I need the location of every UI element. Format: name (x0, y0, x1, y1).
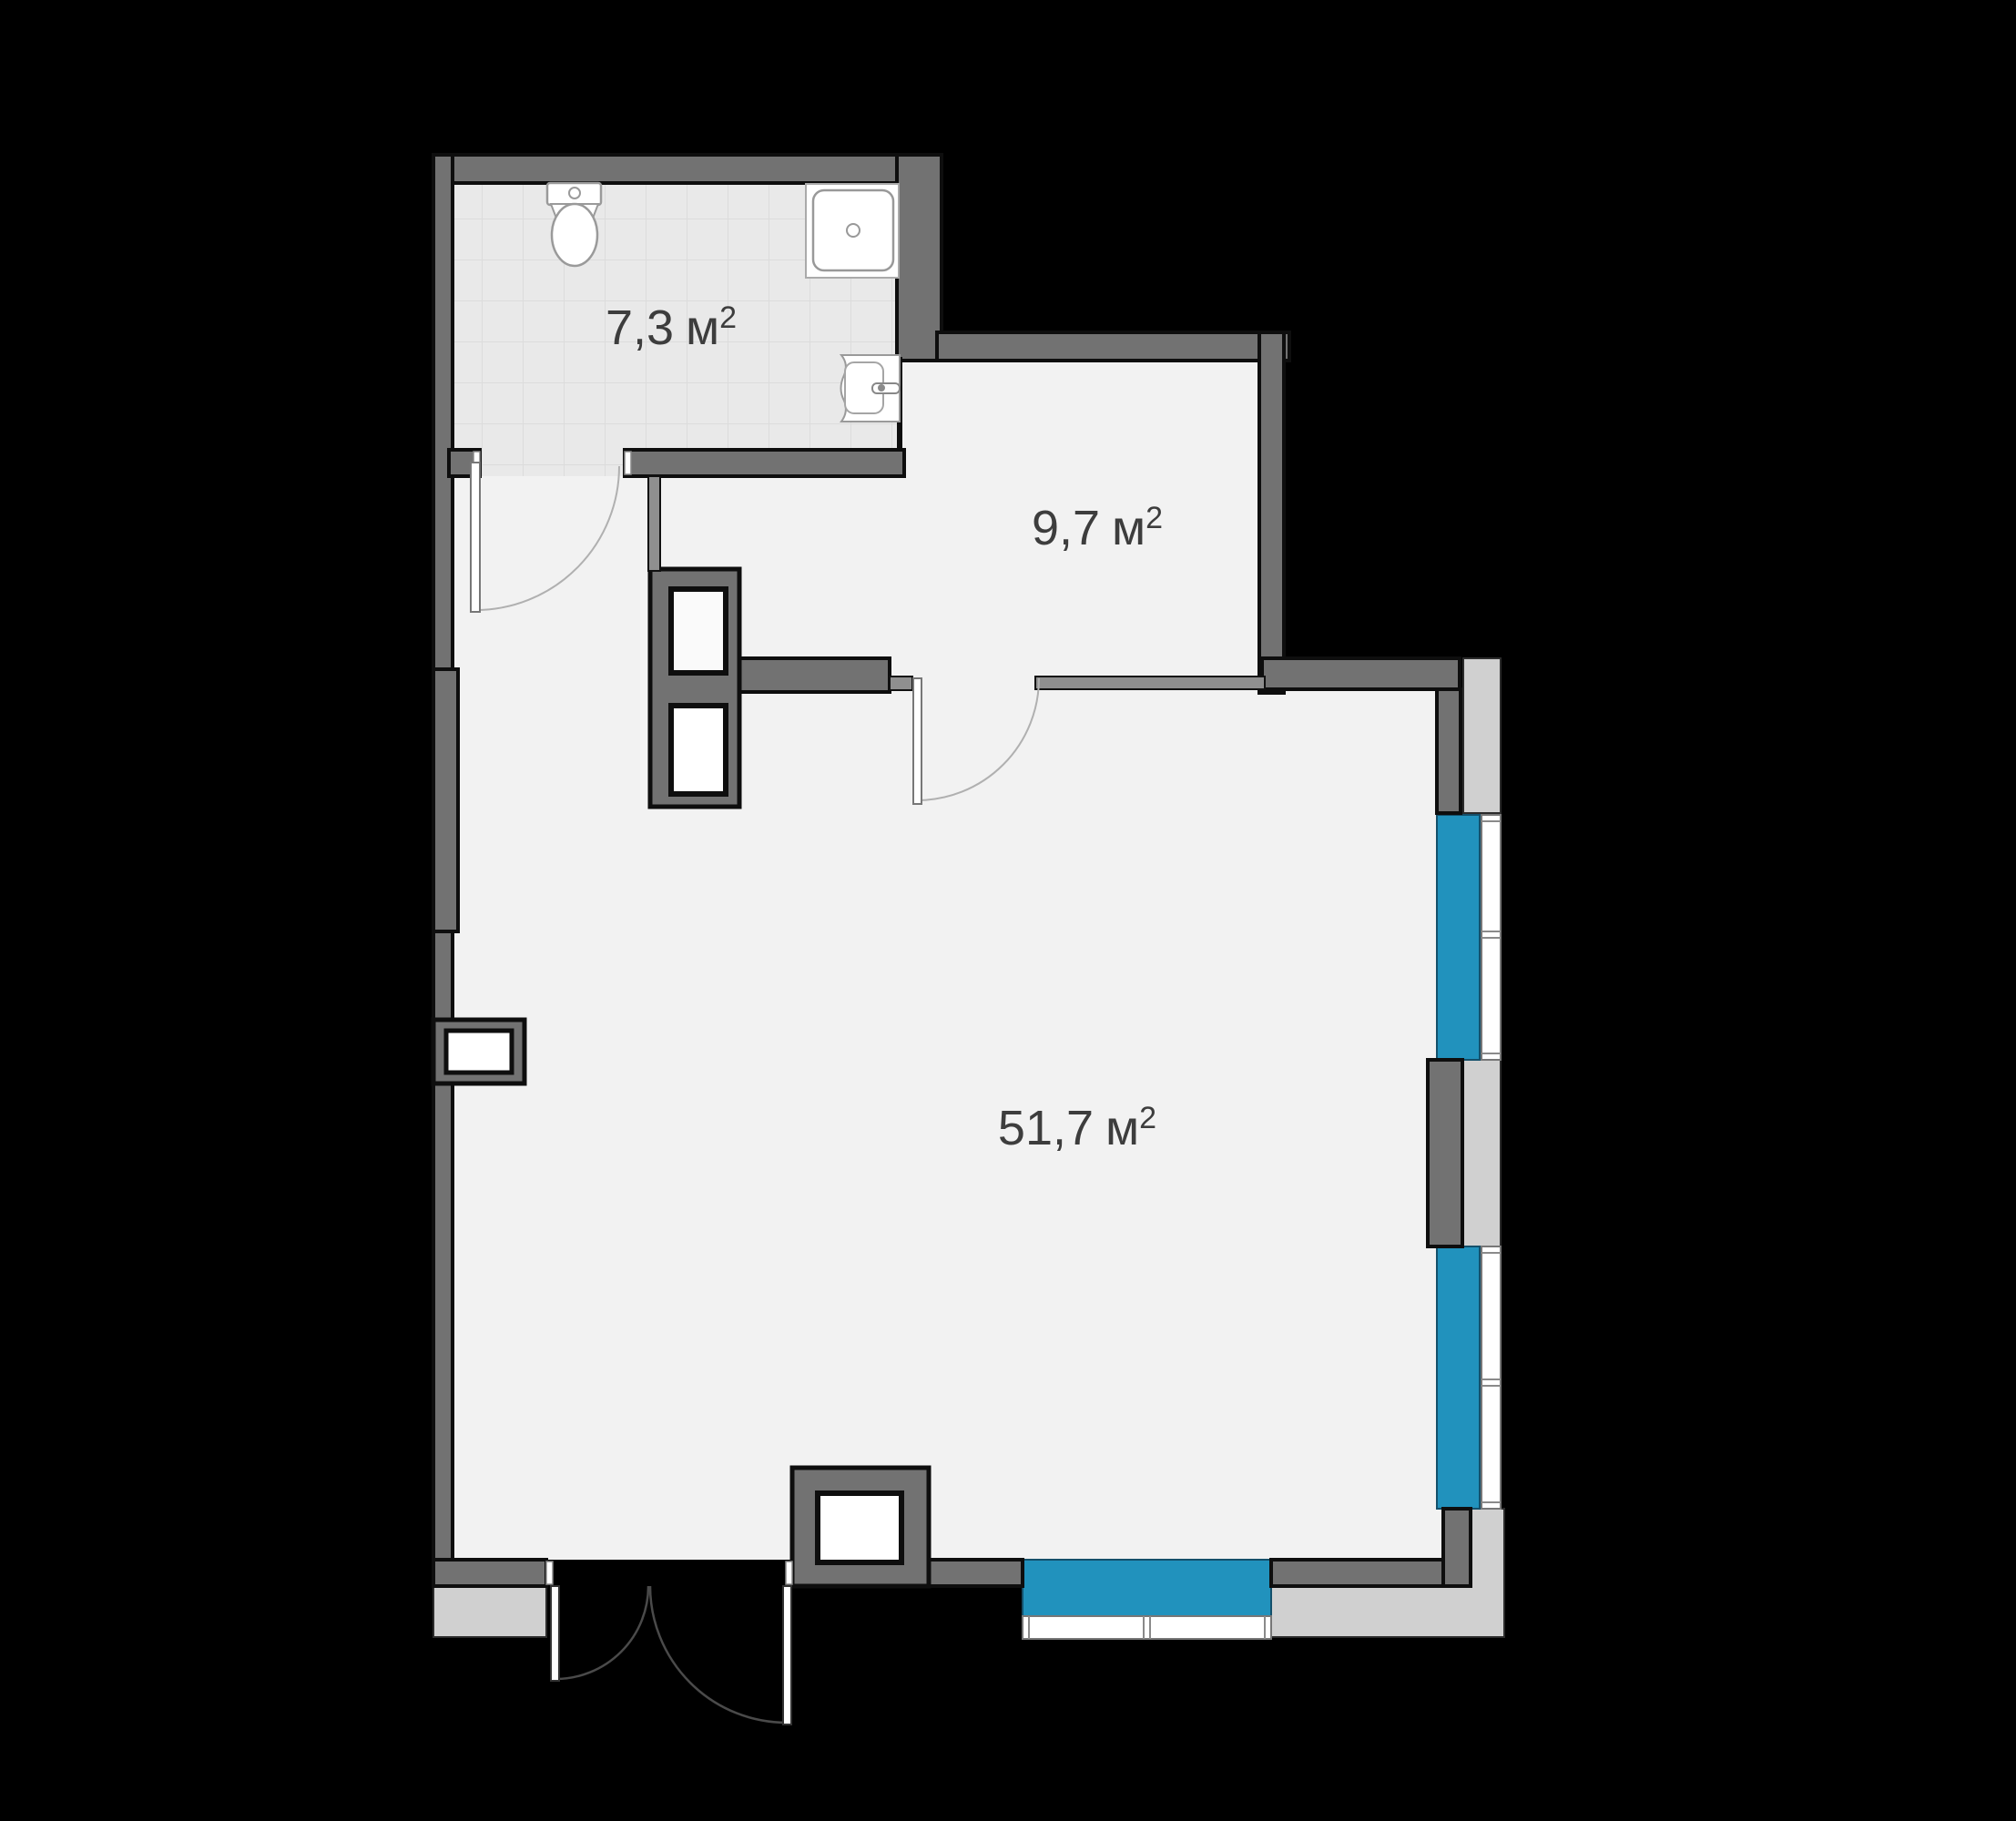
sink-icon (806, 184, 899, 278)
partition-below-bathroom (648, 476, 660, 571)
entrance-door-swing-arc-left-icon (555, 1586, 648, 1679)
floors (453, 183, 1443, 1560)
washbasin-icon (841, 355, 901, 422)
wall-hall-door-left (738, 658, 890, 692)
wall-bathroom-bottom-right (625, 450, 904, 476)
ledge-right-upper (1463, 658, 1501, 813)
window-frame-right-lower (1481, 1246, 1501, 1509)
jamb-entrance-left (546, 1562, 553, 1584)
partition-hall-living (1035, 677, 1265, 689)
entrance-door-leaf-right (783, 1586, 791, 1724)
wall-hallway-top (937, 332, 1289, 361)
entrance-door-swing-arc-right-icon (650, 1586, 787, 1723)
floor-plan-canvas: 7,3м2 9,7м2 51,7м2 (0, 0, 2016, 1821)
wall-bottom-left (433, 1560, 546, 1586)
ventilation-shaft-duct-lower (671, 706, 726, 794)
living-room-area-label: 51,7м2 (998, 1101, 1156, 1155)
hallway-area-label: 9,7м2 (1032, 501, 1163, 555)
utility-shaft-duct (818, 1493, 901, 1562)
ventilation-shaft-duct-upper (671, 589, 726, 673)
toilet-icon (547, 183, 601, 266)
wall-pier-right-middle (1428, 1060, 1462, 1246)
window-right-upper (1437, 815, 1480, 1060)
hall-door-stub (890, 677, 912, 690)
wall-left-pier (433, 669, 458, 931)
wall-niche-opening (446, 1031, 512, 1073)
living-room-floor (453, 658, 1443, 1560)
wall-pier-right-top (1437, 689, 1461, 813)
window-bottom (1023, 1560, 1271, 1616)
window-frame-bottom (1023, 1616, 1271, 1639)
bathroom-area-label: 7,3м2 (606, 300, 737, 355)
floor-plan: 7,3м2 9,7м2 51,7м2 (0, 0, 2016, 1821)
wall-living-top-right (1262, 658, 1460, 689)
wall-bottom-right (1271, 1560, 1443, 1586)
wall-top (433, 155, 942, 183)
entrance-door-leaf-left (551, 1586, 559, 1681)
ledge-bottom-left (433, 1586, 546, 1637)
ledge-right-middle (1462, 1060, 1501, 1246)
window-right-lower (1437, 1246, 1480, 1509)
jamb-bathroom-right (625, 452, 631, 474)
jamb-entrance-right (786, 1562, 792, 1584)
wall-hallway-right (1259, 332, 1284, 693)
wall-bathroom-right (897, 155, 942, 361)
wall-pier-right-bottom (1443, 1509, 1471, 1586)
hall-door-leaf (913, 678, 921, 804)
bathroom-door-leaf (471, 463, 480, 612)
